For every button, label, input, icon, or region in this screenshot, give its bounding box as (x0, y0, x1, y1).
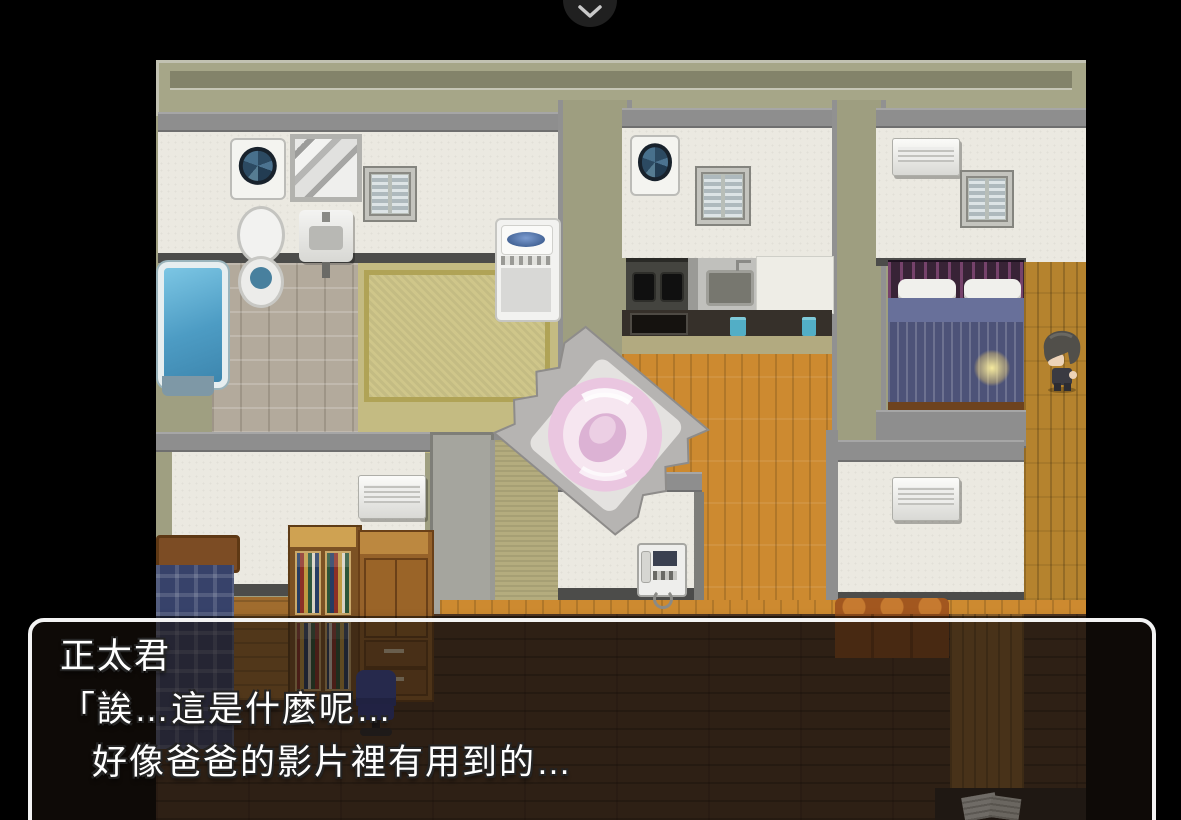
fan-ring (638, 143, 672, 181)
character-hand (1069, 371, 1077, 379)
study-air-conditioner (358, 475, 426, 519)
bedroom-window (962, 172, 1012, 226)
sink-faucet (736, 260, 751, 271)
bathroom-stone-floor (212, 263, 358, 433)
phone-cord (653, 589, 673, 609)
bathroom-exhaust-fan (230, 138, 286, 200)
bed-glow (974, 350, 1010, 386)
washer-lid (501, 225, 553, 255)
dialogue-line-1: 「誒…這是什麼呢… (60, 689, 1152, 731)
dialogue-box[interactable]: 正太君 「誒…這是什麼呢… 好像爸爸的影片裡有用到的… (28, 618, 1156, 820)
living-left-pillar (826, 430, 838, 602)
window-pane (372, 175, 388, 213)
washer-controls (501, 256, 551, 265)
bookshelf-top (290, 527, 356, 547)
bathtub-base (162, 376, 214, 396)
bathtub (158, 262, 228, 388)
bathroom-wall-top (158, 112, 558, 132)
bedroom-air-conditioner (892, 138, 960, 176)
living-wall-top (838, 440, 1024, 462)
window-pane (725, 175, 742, 217)
dialogue-line-2: 好像爸爸的影片裡有用到的… (92, 742, 1152, 784)
character-leg (1054, 383, 1061, 391)
washer-window (507, 232, 545, 247)
bathroom-window (365, 168, 415, 220)
phone-keypad (653, 571, 677, 580)
window-pane (392, 175, 408, 213)
collapse-chevron-button[interactable] (563, 0, 617, 27)
condom-package-item (470, 300, 734, 564)
bathroom-sink (299, 210, 353, 262)
toilet-bowl (238, 256, 284, 308)
kitchen-wall-top (622, 108, 832, 128)
kitchen-counter (756, 256, 834, 314)
bathroom-mirror (290, 134, 362, 202)
fan-blades-icon (243, 151, 273, 181)
fan-ring (239, 146, 277, 184)
window-pane (704, 175, 721, 217)
character-shadow (1048, 387, 1076, 393)
ac-slats (364, 485, 421, 503)
sink-pedestal (322, 262, 330, 278)
ac-slats (898, 147, 955, 162)
sink-faucet (322, 212, 330, 222)
character-body (1052, 368, 1072, 385)
living-air-conditioner (892, 477, 960, 521)
player-character (1040, 328, 1084, 394)
toilet-water (250, 267, 272, 289)
book-pane (295, 551, 321, 615)
blue-cup (802, 317, 816, 336)
window-pane (989, 179, 1005, 219)
window-pane (969, 179, 985, 219)
bed-blanket-top (888, 298, 1024, 325)
stove-burner (632, 272, 656, 302)
screen: 正太君 「誒…這是什麼呢… 好像爸爸的影片裡有用到的… (0, 0, 1181, 820)
sink-basin (309, 226, 343, 250)
fan-blades-icon (642, 147, 669, 176)
kitchen-exhaust-fan (630, 135, 680, 196)
book-pane (325, 551, 351, 615)
kitchen-window (697, 168, 749, 224)
ac-slats (898, 487, 955, 505)
speaker-name: 正太君 (60, 636, 1152, 678)
character-leg (1064, 383, 1071, 391)
chevron-down-icon (576, 4, 604, 20)
wardrobe-top (360, 532, 428, 554)
bedroom-wall-top (876, 108, 1086, 128)
outer-wall-groove (170, 71, 1072, 90)
stove-burner (660, 272, 684, 302)
